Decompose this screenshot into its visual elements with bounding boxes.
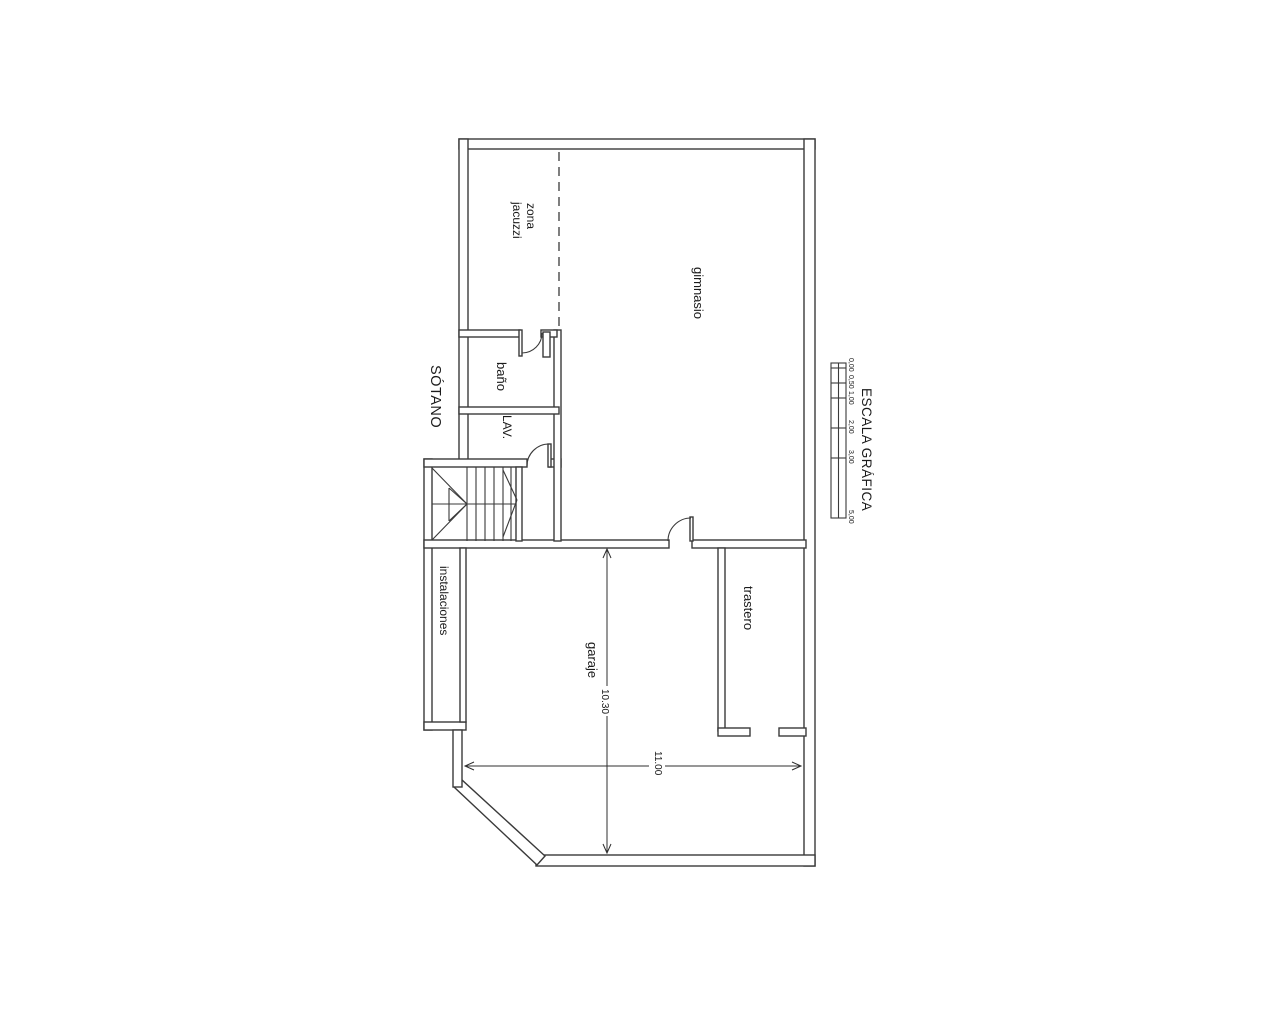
floor-plan-page: 10.30 11.00 SÓTANO zona jacuzzi gimnasio… — [0, 0, 1280, 1024]
wall-step-bottom — [424, 722, 466, 730]
wall-trastero-bottom-right — [779, 728, 806, 736]
label-gimnasio: gimnasio — [691, 267, 706, 319]
wall-jacuzzi-side — [554, 330, 561, 541]
label-zona: zona — [524, 203, 538, 229]
wall-chamfer — [454, 780, 545, 865]
scale-tick-0: 0,00 — [847, 358, 854, 372]
dim-label-11-00: 11.00 — [652, 751, 663, 776]
stair-winder-diagonal — [503, 500, 517, 537]
scale-tick-1: 0,50 — [847, 375, 854, 389]
label-jacuzzi: jacuzzi — [510, 201, 524, 239]
wall-stair-right — [516, 467, 522, 541]
stair-winder-diagonal — [503, 470, 517, 500]
wall-trastero-left — [718, 548, 725, 731]
graphic-scale: 0,00 0,50 1,00 2,00 3,00 5,00 ESCALA GRÁ… — [831, 358, 874, 524]
bano-door-arc — [522, 333, 542, 353]
gimnasio-garaje-door-leaf — [690, 517, 693, 541]
wall-garage-top-left — [424, 540, 669, 548]
wall-step-right — [453, 730, 462, 787]
wall-instalaciones-right — [460, 548, 466, 722]
wall-right — [804, 139, 815, 866]
stair-winder-diagonal — [449, 504, 467, 521]
dim-label-10-30: 10.30 — [599, 689, 610, 714]
wall-trastero-bottom-left — [718, 728, 750, 736]
label-trastero: trastero — [741, 586, 756, 630]
lav-door-leaf — [548, 444, 551, 467]
scale-tick-2: 1,00 — [847, 391, 854, 405]
doors — [519, 330, 693, 541]
lav-door-arc — [527, 444, 549, 466]
wall-left-upper — [459, 139, 468, 466]
scale-tick-4: 3,00 — [847, 450, 854, 464]
wall-bano-top — [459, 330, 520, 337]
wall-garage-top-right — [692, 540, 806, 548]
label-lavadero: LAV. — [500, 415, 514, 439]
walls — [424, 139, 815, 866]
label-bano: baño — [494, 362, 509, 391]
room-labels: SÓTANO zona jacuzzi gimnasio baño LAV. i… — [427, 201, 756, 678]
label-garaje: garaje — [585, 642, 600, 678]
label-instalaciones: instalaciones — [437, 566, 451, 635]
wall-lav-bottom-left — [424, 459, 527, 467]
plan-title: SÓTANO — [427, 365, 444, 428]
wall-top — [459, 139, 815, 149]
scale-tick-3: 2,00 — [847, 420, 854, 434]
gimnasio-garaje-door-arc — [668, 518, 691, 541]
wall-left-stair-jut — [424, 459, 432, 730]
stair-winder-diagonal — [449, 488, 467, 504]
scale-tick-5: 5,00 — [847, 510, 854, 524]
bano-door-leaf — [519, 330, 522, 356]
floor-plan-svg: 10.30 11.00 SÓTANO zona jacuzzi gimnasio… — [0, 0, 1280, 1024]
wall-bano-door-stub-v — [543, 332, 550, 357]
wall-bottom — [536, 855, 815, 866]
scale-bar-title: ESCALA GRÁFICA — [859, 388, 874, 511]
wall-bano-lav-divider — [459, 407, 559, 414]
staircase — [432, 467, 517, 541]
